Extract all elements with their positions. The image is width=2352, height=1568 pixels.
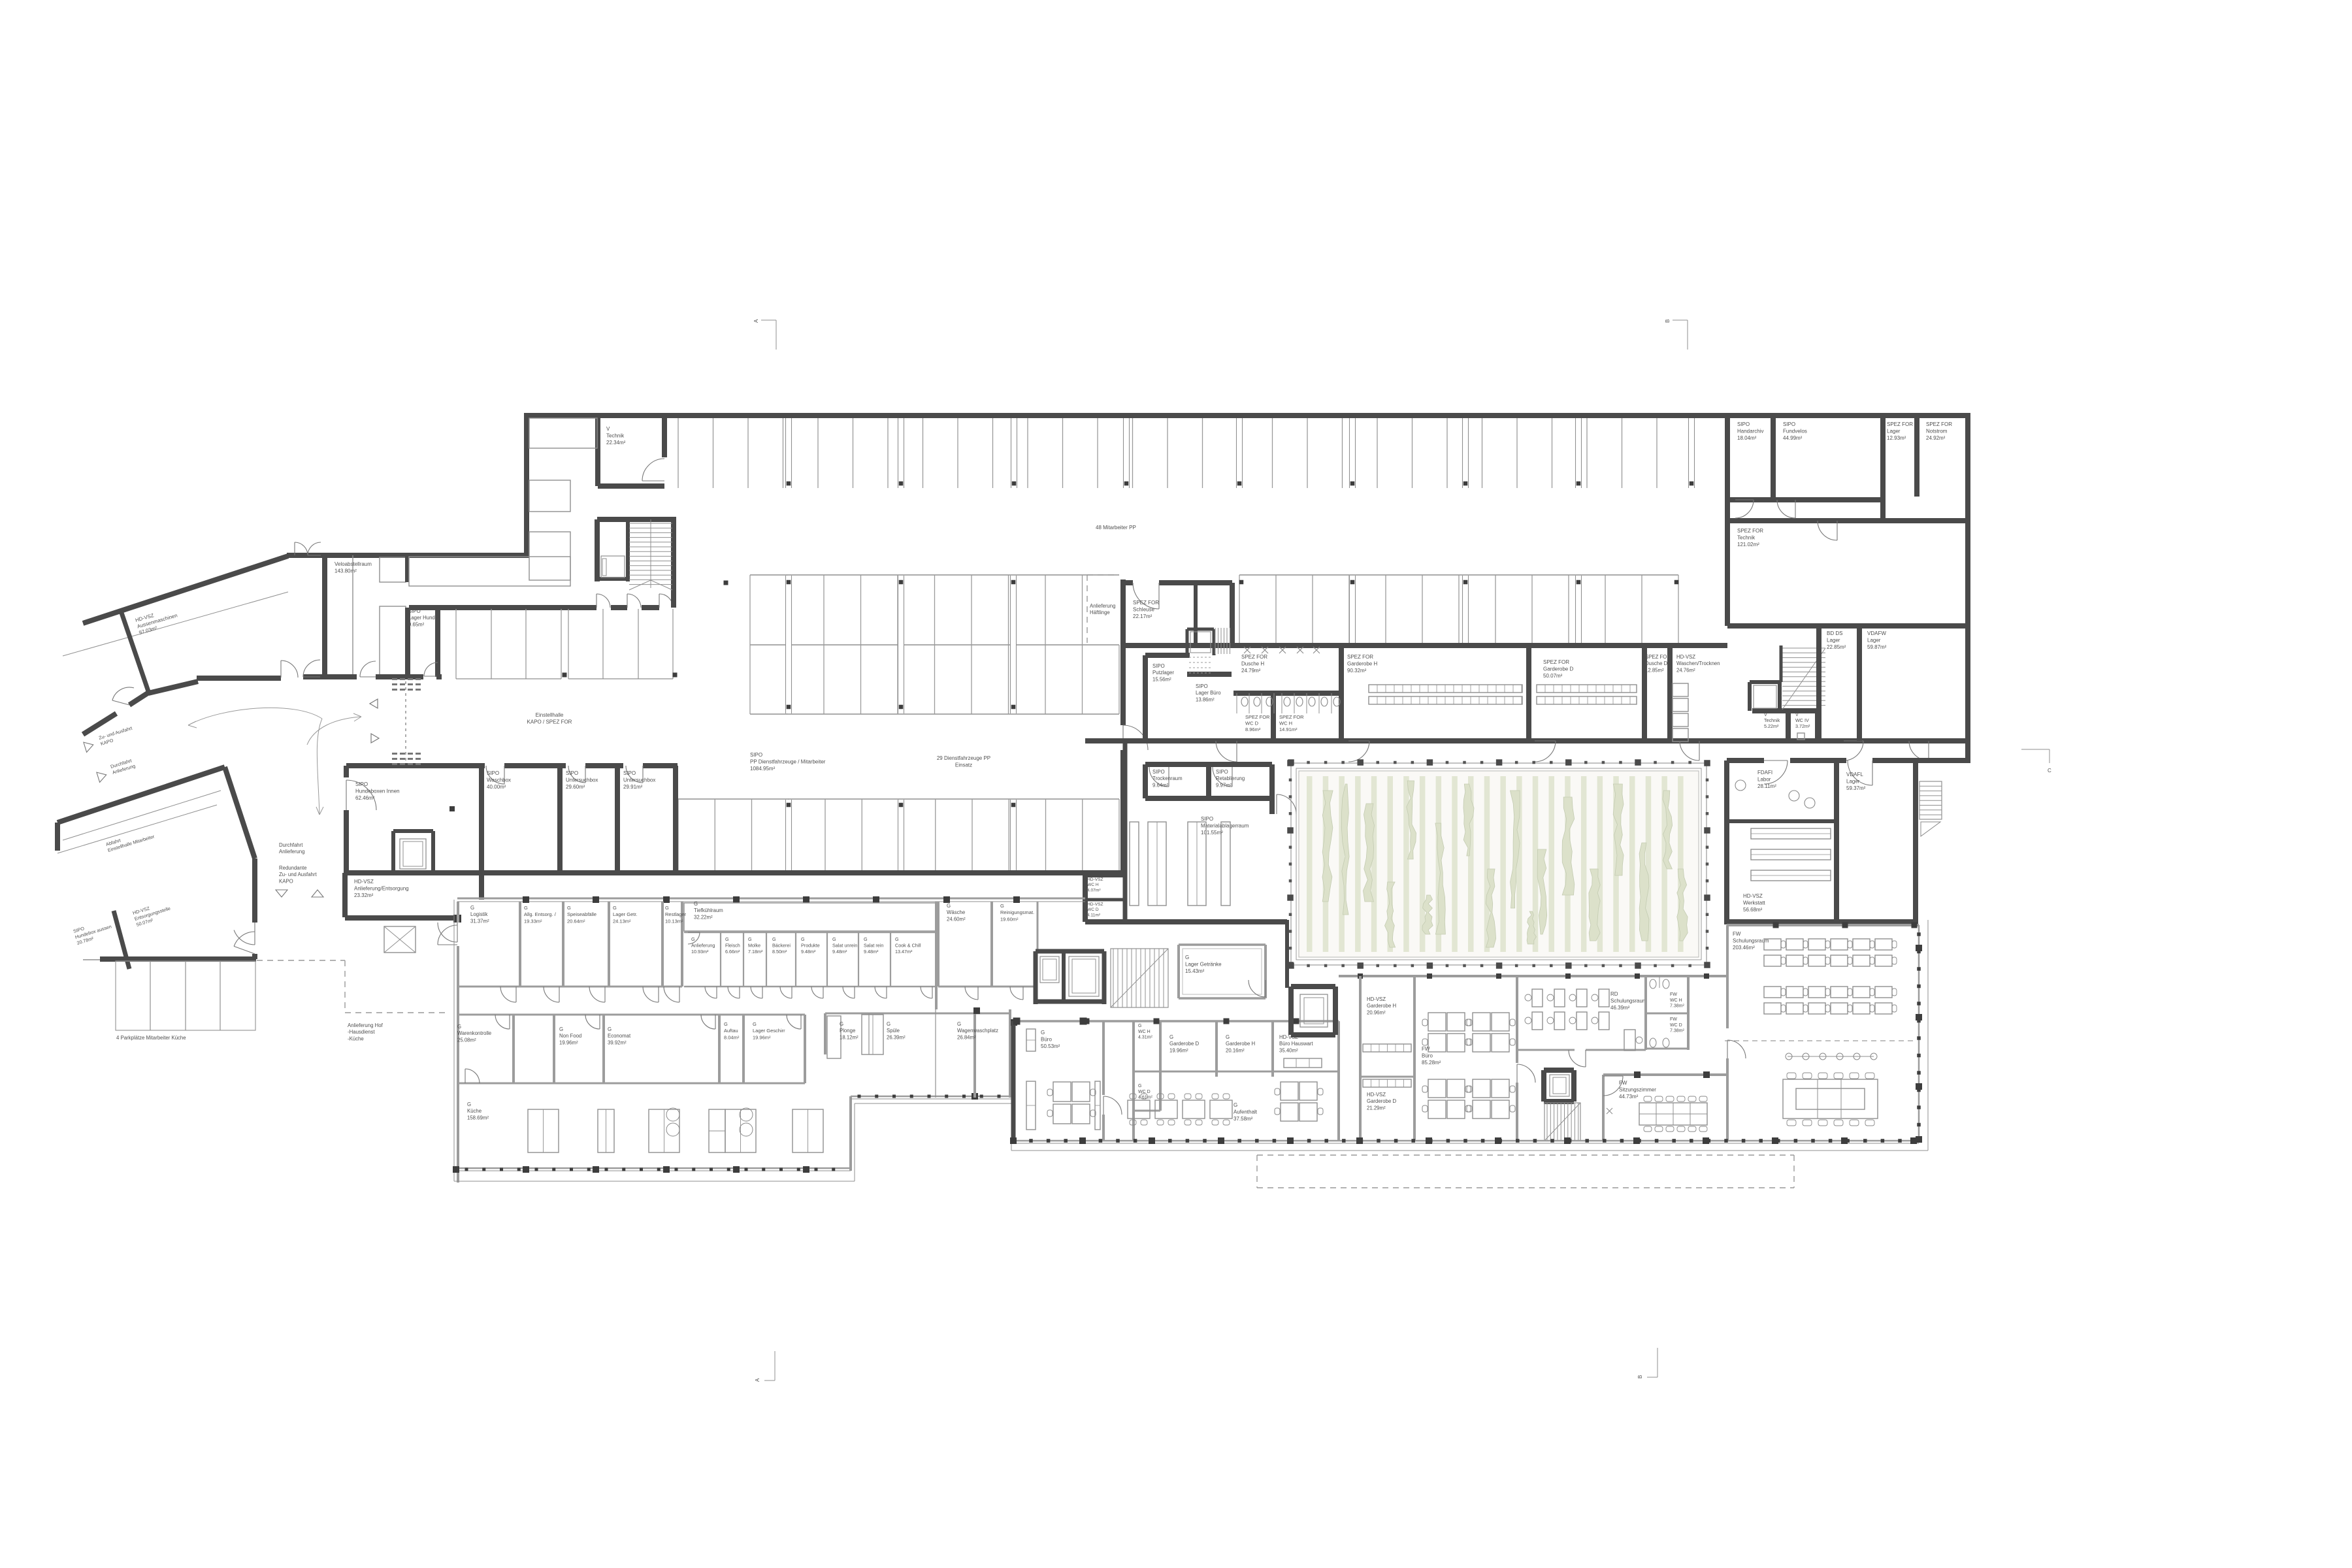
svg-text:B: B [1665,319,1671,323]
svg-text:4 Parkplätze Mitarbeiter Kü: 4 Parkplätze Mitarbeiter Küche [116,1035,186,1041]
svg-text:DurchfahrtAnlieferung: DurchfahrtAnlieferung [279,842,304,855]
svg-text:A: A [755,1378,760,1382]
svg-text:C: C [2048,768,2051,774]
svg-text:B: B [1637,1375,1643,1379]
svg-text:48 Mitarbeiter PP: 48 Mitarbeiter PP [1096,525,1136,531]
svg-text:HD-VSZWerkstatt56.68m²: HD-VSZWerkstatt56.68m² [1743,893,1765,913]
svg-text:A: A [753,319,759,323]
